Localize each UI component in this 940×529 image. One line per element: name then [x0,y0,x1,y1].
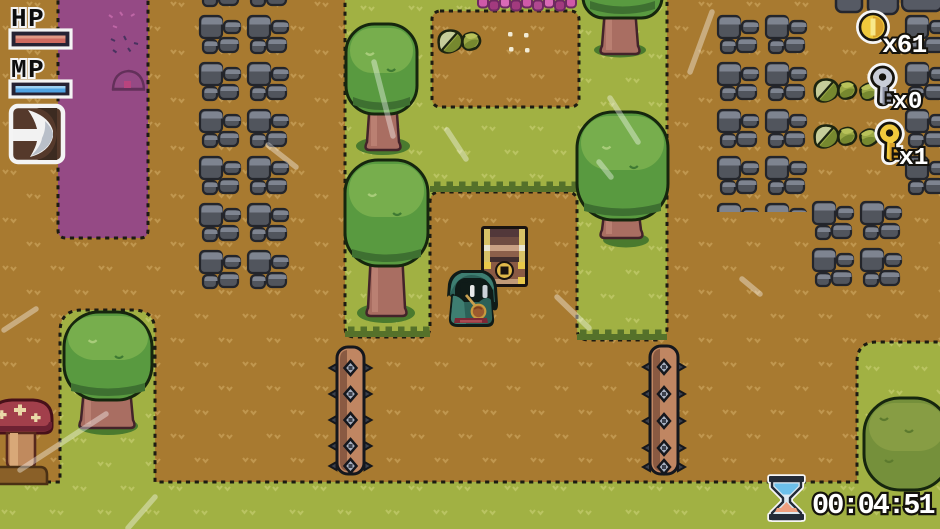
svg-text:x1: x1 [899,145,928,172]
svg-text:x0: x0 [893,89,922,116]
svg-text:x61: x61 [882,30,927,60]
svg-text:00:04:51: 00:04:51 [812,489,934,522]
